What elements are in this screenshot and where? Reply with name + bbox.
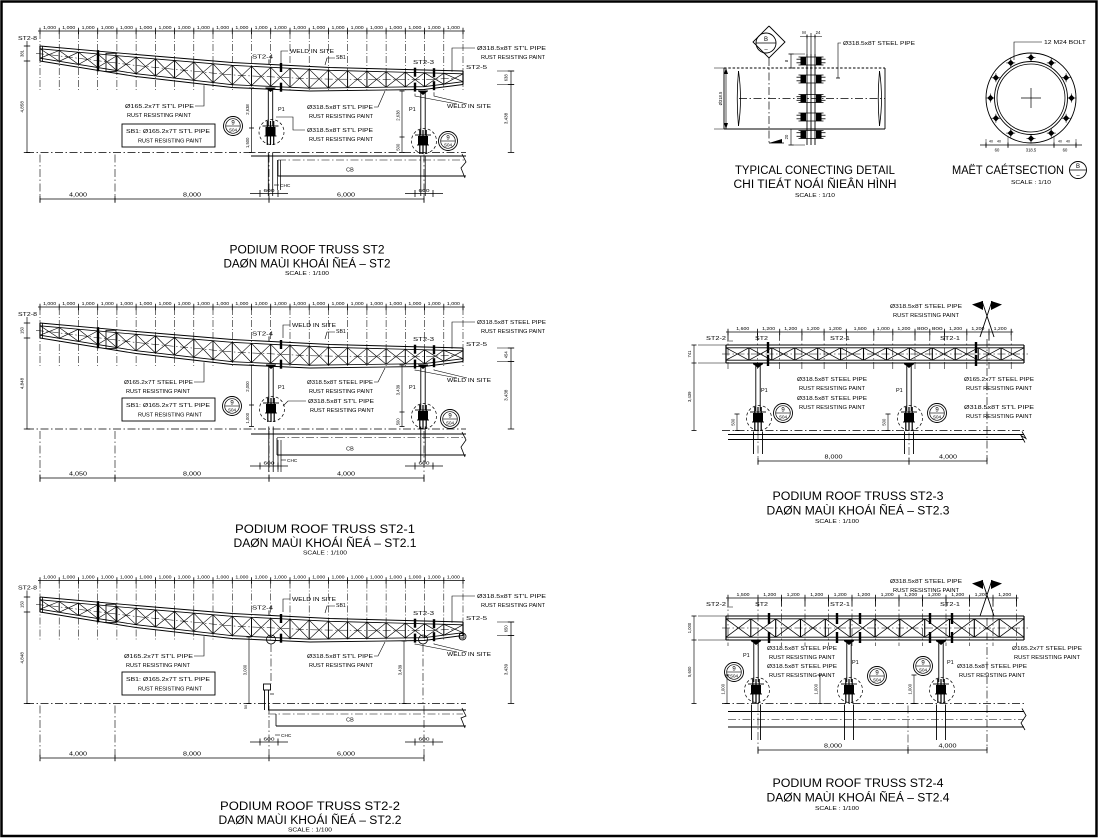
svg-text:B: B <box>1076 164 1080 170</box>
svg-text:SB1: Ø165.2x7T ST'L PIPE: SB1: Ø165.2x7T ST'L PIPE <box>126 129 211 135</box>
svg-text:3,438: 3,438 <box>504 112 509 124</box>
svg-text:800: 800 <box>917 326 929 331</box>
svg-text:20: 20 <box>784 134 789 139</box>
svg-text:1,200: 1,200 <box>994 326 1008 331</box>
svg-text:RUST RESISTING PAINT: RUST RESISTING PAINT <box>481 603 546 609</box>
svg-text:S04: S04 <box>919 668 928 673</box>
svg-text:ST2-4: ST2-4 <box>252 54 274 60</box>
svg-text:1,200: 1,200 <box>784 326 798 331</box>
svg-text:ST2-5: ST2-5 <box>466 342 487 348</box>
svg-text:3,439: 3,439 <box>687 391 692 402</box>
svg-text:1,000: 1,000 <box>43 301 57 306</box>
svg-text:DAØN MAÙI KHOÁI ÑEÁ – ST2.2: DAØN MAÙI KHOÁI ÑEÁ – ST2.2 <box>219 814 402 827</box>
svg-text:741: 741 <box>687 350 692 358</box>
svg-text:PODIUM ROOF TRUSS ST2-1: PODIUM ROOF TRUSS ST2-1 <box>235 524 415 536</box>
svg-text:1,000: 1,000 <box>178 25 192 30</box>
svg-text:1,200: 1,200 <box>998 592 1012 597</box>
svg-text:Ø318.5x8T ST'L PIPE: Ø318.5x8T ST'L PIPE <box>308 399 375 405</box>
svg-text:WELD IN SITE: WELD IN SITE <box>290 49 335 55</box>
svg-text:S04: S04 <box>933 415 942 420</box>
svg-text:1,200: 1,200 <box>807 326 821 331</box>
svg-text:Ø318.5x8T STEEL PIPE: Ø318.5x8T STEEL PIPE <box>767 646 838 652</box>
svg-text:4,050: 4,050 <box>69 472 87 478</box>
svg-text:4,000: 4,000 <box>939 455 957 461</box>
svg-text:1,000: 1,000 <box>312 25 326 30</box>
svg-text:150: 150 <box>20 600 25 608</box>
svg-text:1,000: 1,000 <box>139 574 153 579</box>
svg-text:CHC: CHC <box>280 183 291 189</box>
svg-text:1,000: 1,000 <box>82 25 96 30</box>
svg-text:WELD IN SITE: WELD IN SITE <box>292 597 337 603</box>
svg-text:ST2-5: ST2-5 <box>466 65 487 71</box>
svg-text:P1: P1 <box>278 385 285 391</box>
svg-text:500: 500 <box>731 418 736 426</box>
svg-text:4,000: 4,000 <box>337 472 355 478</box>
svg-text:40: 40 <box>1058 140 1062 144</box>
svg-text:4,000: 4,000 <box>939 744 957 750</box>
svg-text:1,000: 1,000 <box>120 574 134 579</box>
svg-text:WELD IN SITE: WELD IN SITE <box>447 652 492 658</box>
svg-text:1,000: 1,000 <box>428 25 442 30</box>
svg-text:1,200: 1,200 <box>975 592 989 597</box>
svg-text:24: 24 <box>816 30 821 35</box>
svg-text:RUST RESISTING PAINT: RUST RESISTING PAINT <box>138 687 203 693</box>
svg-text:638: 638 <box>504 74 509 82</box>
svg-text:50: 50 <box>244 705 248 709</box>
svg-text:1,000: 1,000 <box>235 574 249 579</box>
svg-text:1,200: 1,200 <box>951 592 965 597</box>
svg-text:4,000: 4,000 <box>69 752 87 758</box>
svg-text:S04: S04 <box>730 674 739 679</box>
svg-text:1,000: 1,000 <box>62 574 76 579</box>
svg-text:1,000: 1,000 <box>351 25 365 30</box>
svg-text:PODIUM ROOF TRUSS ST2-4: PODIUM ROOF TRUSS ST2-4 <box>773 778 945 790</box>
svg-text:RUST RESISTING PAINT: RUST RESISTING PAINT <box>799 386 866 392</box>
svg-text:CB: CB <box>346 718 354 724</box>
svg-text:1,000: 1,000 <box>447 301 461 306</box>
svg-text:500: 500 <box>396 143 401 151</box>
svg-text:SB1: Ø165.2x7T ST'L PIPE: SB1: Ø165.2x7T ST'L PIPE <box>126 403 211 409</box>
svg-text:S04: S04 <box>779 415 788 420</box>
svg-text:ST2-1: ST2-1 <box>940 602 960 608</box>
svg-text:600: 600 <box>264 461 276 466</box>
svg-text:ST2-2: ST2-2 <box>706 336 726 342</box>
svg-text:1,000: 1,000 <box>82 574 96 579</box>
svg-text:1,000: 1,000 <box>389 301 403 306</box>
svg-text:1,000: 1,000 <box>101 25 115 30</box>
svg-text:Ø165.2x7T ST'L PIPE: Ø165.2x7T ST'L PIPE <box>124 654 194 660</box>
svg-text:Ø318.5x8T STEEL PIPE: Ø318.5x8T STEEL PIPE <box>797 377 868 383</box>
svg-text:1,000: 1,000 <box>139 25 153 30</box>
svg-text:1,000: 1,000 <box>408 574 422 579</box>
svg-text:1,000: 1,000 <box>178 301 192 306</box>
svg-text:DAØN MAÙI KHOÁI ÑEÁ – ST2.1: DAØN MAÙI KHOÁI ÑEÁ – ST2.1 <box>234 537 417 550</box>
svg-text:P1: P1 <box>743 653 750 659</box>
svg-text:RUST RESISTING PAINT: RUST RESISTING PAINT <box>138 139 203 145</box>
svg-text:1,000: 1,000 <box>274 301 288 306</box>
svg-text:1,000: 1,000 <box>389 574 403 579</box>
svg-text:1,000: 1,000 <box>159 25 173 30</box>
svg-text:1,000: 1,000 <box>351 574 365 579</box>
svg-text:1,000: 1,000 <box>197 301 211 306</box>
svg-text:1,000: 1,000 <box>293 574 307 579</box>
svg-text:RUST RESISTING PAINT: RUST RESISTING PAINT <box>309 114 374 120</box>
svg-text:2,638: 2,638 <box>396 110 401 121</box>
svg-text:1,000: 1,000 <box>43 574 57 579</box>
svg-text:Ø318.5x8T ST'L PIPE: Ø318.5x8T ST'L PIPE <box>964 405 1035 411</box>
svg-text:1,000: 1,000 <box>197 574 211 579</box>
svg-text:1,000: 1,000 <box>235 301 249 306</box>
svg-text:ST2-4: ST2-4 <box>252 605 274 611</box>
svg-text:4,858: 4,858 <box>20 101 25 113</box>
svg-text:P1: P1 <box>409 107 416 113</box>
svg-text:1,000: 1,000 <box>159 301 173 306</box>
svg-text:60: 60 <box>995 148 1000 153</box>
svg-text:1,000: 1,000 <box>274 25 288 30</box>
svg-text:600: 600 <box>419 461 431 466</box>
svg-text:1,000: 1,000 <box>255 25 269 30</box>
svg-text:B: B <box>764 37 768 43</box>
svg-text:RUST RESISTING PAINT: RUST RESISTING PAINT <box>481 329 546 335</box>
svg-text:1,500: 1,500 <box>737 592 751 597</box>
svg-text:Ø318.5x8T ST'L PIPE: Ø318.5x8T ST'L PIPE <box>307 654 374 660</box>
svg-text:1,000: 1,000 <box>216 301 230 306</box>
svg-text:4,848: 4,848 <box>20 377 25 389</box>
svg-text:1,000: 1,000 <box>312 574 326 579</box>
svg-text:1,000: 1,000 <box>428 574 442 579</box>
svg-text:600: 600 <box>264 737 276 742</box>
svg-text:RUST RESISTING PAINT: RUST RESISTING PAINT <box>127 113 192 119</box>
svg-text:RUST RESISTING PAINT: RUST RESISTING PAINT <box>966 414 1033 420</box>
svg-text:ST2-1: ST2-1 <box>830 602 850 608</box>
svg-text:SCALE : 1/10: SCALE : 1/10 <box>1011 180 1051 186</box>
svg-text:Ø165.2x7T STEEL PIPE: Ø165.2x7T STEEL PIPE <box>1012 646 1083 652</box>
svg-text:1,000: 1,000 <box>370 574 384 579</box>
svg-text:1,200: 1,200 <box>904 592 918 597</box>
svg-text:1,600: 1,600 <box>736 326 750 331</box>
svg-text:8,000: 8,000 <box>183 472 201 478</box>
svg-text:1,200: 1,200 <box>928 592 942 597</box>
svg-text:1,500: 1,500 <box>245 137 250 148</box>
svg-text:1,000: 1,000 <box>428 301 442 306</box>
svg-text:1,000: 1,000 <box>101 301 115 306</box>
svg-text:SB1: SB1 <box>336 55 346 61</box>
svg-text:1,000: 1,000 <box>370 25 384 30</box>
svg-text:ST2-8: ST2-8 <box>18 312 37 318</box>
svg-text:S04: S04 <box>446 421 455 426</box>
svg-text:8,000: 8,000 <box>824 744 842 750</box>
svg-text:ST2-3: ST2-3 <box>413 611 434 617</box>
svg-text:40: 40 <box>997 140 1001 144</box>
svg-text:3,439: 3,439 <box>398 664 403 675</box>
svg-text:RUST RESISTING PAINT: RUST RESISTING PAINT <box>959 673 1026 679</box>
svg-text:P1: P1 <box>896 388 903 394</box>
svg-text:1,000: 1,000 <box>43 25 57 30</box>
svg-text:Ø318.5x8T ST'L PIPE: Ø318.5x8T ST'L PIPE <box>477 46 547 52</box>
svg-text:CHC: CHC <box>281 733 292 739</box>
svg-text:1,000: 1,000 <box>687 622 692 633</box>
svg-text:PODIUM ROOF TRUSS ST2: PODIUM ROOF TRUSS ST2 <box>230 245 385 257</box>
svg-text:SB1: Ø165.2x7T ST'L PIPE: SB1: Ø165.2x7T ST'L PIPE <box>126 677 211 683</box>
svg-text:1,000: 1,000 <box>255 301 269 306</box>
svg-text:1,000: 1,000 <box>62 301 76 306</box>
svg-text:1,000: 1,000 <box>216 25 230 30</box>
svg-text:RUST RESISTING PAINT: RUST RESISTING PAINT <box>309 389 374 395</box>
svg-text:1,000: 1,000 <box>877 326 891 331</box>
svg-text:1,200: 1,200 <box>829 326 843 331</box>
svg-text:3,439: 3,439 <box>396 384 401 395</box>
svg-text:ST2-8: ST2-8 <box>18 586 37 592</box>
svg-text:1,000: 1,000 <box>408 301 422 306</box>
svg-text:8,000: 8,000 <box>183 193 201 199</box>
svg-text:P1: P1 <box>761 388 768 394</box>
svg-text:1,200: 1,200 <box>762 326 776 331</box>
svg-text:1,500: 1,500 <box>854 326 868 331</box>
svg-text:1,000: 1,000 <box>370 301 384 306</box>
svg-text:381: 381 <box>20 49 25 57</box>
svg-text:1,000: 1,000 <box>351 301 365 306</box>
svg-text:1,200: 1,200 <box>949 326 963 331</box>
svg-text:Ø318.5x8T STEEL PIPE: Ø318.5x8T STEEL PIPE <box>890 304 963 310</box>
svg-text:1,200: 1,200 <box>787 592 801 597</box>
svg-text:S04: S04 <box>444 143 453 148</box>
svg-text:RUST RESISTING PAINT: RUST RESISTING PAINT <box>769 673 836 679</box>
svg-text:RUST RESISTING PAINT: RUST RESISTING PAINT <box>126 389 191 395</box>
svg-text:ST2-3: ST2-3 <box>413 337 434 343</box>
svg-text:P1: P1 <box>852 660 859 666</box>
svg-text:ST2-1: ST2-1 <box>940 336 960 342</box>
svg-text:Ø318.5x8T ST'L PIPE: Ø318.5x8T ST'L PIPE <box>477 594 547 600</box>
svg-text:SCALE : 1/100: SCALE : 1/100 <box>288 828 332 834</box>
svg-text:ST2-2: ST2-2 <box>706 602 726 608</box>
svg-text:1,000: 1,000 <box>139 301 153 306</box>
svg-text:1,000: 1,000 <box>908 683 913 694</box>
svg-text:1,000: 1,000 <box>447 574 461 579</box>
svg-text:Ø318.5x8T STEEL PIPE: Ø318.5x8T STEEL PIPE <box>477 320 547 326</box>
svg-text:S04: S04 <box>873 678 882 683</box>
svg-text:1,000: 1,000 <box>178 574 192 579</box>
svg-text:RUST RESISTING PAINT: RUST RESISTING PAINT <box>769 655 836 661</box>
svg-text:1,000: 1,000 <box>120 301 134 306</box>
svg-text:ST2-8: ST2-8 <box>18 36 37 42</box>
svg-text:CHC: CHC <box>287 458 298 464</box>
svg-text:1,000: 1,000 <box>332 574 346 579</box>
svg-text:ST2-1: ST2-1 <box>830 336 850 342</box>
svg-text:1,200: 1,200 <box>834 592 848 597</box>
svg-text:RUST RESISTING PAINT: RUST RESISTING PAINT <box>799 405 866 411</box>
svg-text:1,200: 1,200 <box>897 326 911 331</box>
svg-text:1,000: 1,000 <box>447 25 461 30</box>
svg-text:1,200: 1,200 <box>857 592 871 597</box>
svg-text:1,000: 1,000 <box>235 25 249 30</box>
svg-text:RUST RESISTING PAINT: RUST RESISTING PAINT <box>138 413 203 419</box>
svg-text:SCALE : 1/10: SCALE : 1/10 <box>795 193 835 199</box>
svg-text:SB1: SB1 <box>336 603 346 609</box>
svg-text:650: 650 <box>504 625 509 633</box>
svg-text:CB: CB <box>346 447 354 453</box>
svg-text:PODIUM ROOF TRUSS ST2-2: PODIUM ROOF TRUSS ST2-2 <box>220 801 400 813</box>
svg-text:S04: S04 <box>228 408 237 413</box>
svg-text:8,000: 8,000 <box>183 752 201 758</box>
svg-text:PODIUM ROOF TRUSS ST2-3: PODIUM ROOF TRUSS ST2-3 <box>773 491 944 503</box>
svg-text:RUST RESISTING PAINT: RUST RESISTING PAINT <box>1014 655 1081 661</box>
svg-text:MAËT CAÉTSECTION: MAËT CAÉTSECTION <box>952 164 1064 177</box>
svg-text:1,000: 1,000 <box>408 25 422 30</box>
svg-text:4,000: 4,000 <box>69 193 87 199</box>
svg-text:SCALE : 1/100: SCALE : 1/100 <box>815 519 859 525</box>
svg-text:WELD IN SITE: WELD IN SITE <box>292 323 337 329</box>
svg-text:Ø318.5x8T ST'L PIPE: Ø318.5x8T ST'L PIPE <box>307 128 374 134</box>
svg-text:1,000: 1,000 <box>62 25 76 30</box>
svg-text:1,000: 1,000 <box>101 574 115 579</box>
svg-text:2,000: 2,000 <box>245 381 250 392</box>
svg-text:6,000: 6,000 <box>337 752 355 758</box>
svg-text:ST2: ST2 <box>755 336 768 342</box>
svg-text:1,000: 1,000 <box>159 574 173 579</box>
svg-text:SCALE : 1/100: SCALE : 1/100 <box>303 551 347 557</box>
svg-text:TYPICAL CONECTING DETAIL: TYPICAL CONECTING DETAIL <box>735 165 896 177</box>
svg-text:P1: P1 <box>947 660 954 666</box>
svg-text:S04: S04 <box>229 128 238 133</box>
svg-text:500: 500 <box>882 418 887 426</box>
svg-text:RUST RESISTING PAINT: RUST RESISTING PAINT <box>310 408 375 414</box>
svg-text:1,000: 1,000 <box>255 574 269 579</box>
svg-text:RUST RESISTING PAINT: RUST RESISTING PAINT <box>309 663 374 669</box>
svg-text:DAØN MAÙI KHOÁI ÑEÁ – ST2.4: DAØN MAÙI KHOÁI ÑEÁ – ST2.4 <box>767 792 951 805</box>
svg-text:DAØN MAÙI KHOÁI ÑEÁ – ST2: DAØN MAÙI KHOÁI ÑEÁ – ST2 <box>224 258 391 271</box>
svg-text:600: 600 <box>264 188 276 193</box>
svg-text:CHI TIEÁT NOÁI ÑIEÂN HÌNH: CHI TIEÁT NOÁI ÑIEÂN HÌNH <box>734 178 897 191</box>
svg-text:454: 454 <box>504 351 509 359</box>
svg-text:RUST RESISTING PAINT: RUST RESISTING PAINT <box>126 663 191 669</box>
svg-text:SCALE : 1/100: SCALE : 1/100 <box>815 806 859 812</box>
svg-text:ST2: ST2 <box>755 602 768 608</box>
svg-text:RUST RESISTING PAINT: RUST RESISTING PAINT <box>893 588 960 594</box>
svg-text:1,000: 1,000 <box>197 25 211 30</box>
svg-text:12 M24 BOLT: 12 M24 BOLT <box>1044 40 1087 46</box>
svg-text:SCALE : 1/100: SCALE : 1/100 <box>285 271 329 277</box>
svg-text:4,848: 4,848 <box>20 652 25 664</box>
svg-text:1,000: 1,000 <box>332 25 346 30</box>
svg-text:RUST RESISTING PAINT: RUST RESISTING PAINT <box>481 55 546 61</box>
svg-text:Ø165.2x7T STEEL PIPE: Ø165.2x7T STEEL PIPE <box>964 377 1035 383</box>
svg-text:1,000: 1,000 <box>389 25 403 30</box>
svg-text:1,200: 1,200 <box>810 592 824 597</box>
svg-text:WELD IN SITE: WELD IN SITE <box>447 104 492 110</box>
svg-text:1,200: 1,200 <box>763 592 777 597</box>
svg-text:40: 40 <box>989 140 993 144</box>
svg-text:1,000: 1,000 <box>332 301 346 306</box>
svg-text:8,000: 8,000 <box>825 455 843 461</box>
svg-text:3,439: 3,439 <box>504 663 509 675</box>
svg-text:Ø318.5x8T ST'L PIPE: Ø318.5x8T ST'L PIPE <box>307 105 374 111</box>
svg-text:1,000: 1,000 <box>721 683 726 694</box>
svg-text:Ø318.5x8T STEEL PIPE: Ø318.5x8T STEEL PIPE <box>797 396 868 402</box>
svg-text:1,000: 1,000 <box>120 25 134 30</box>
svg-text:5,600: 5,600 <box>687 666 692 677</box>
svg-text:Ø165.2x7T STEEL PIPE: Ø165.2x7T STEEL PIPE <box>124 380 194 386</box>
svg-text:P1: P1 <box>409 385 416 391</box>
svg-text:Ø165.2x7T ST'L PIPE: Ø165.2x7T ST'L PIPE <box>125 104 195 110</box>
svg-text:1,000: 1,000 <box>814 683 819 694</box>
svg-text:1,200: 1,200 <box>971 326 985 331</box>
svg-text:P1: P1 <box>278 107 285 113</box>
svg-text:150: 150 <box>20 326 25 334</box>
svg-text:Ø318.5x8T STEEL PIPE: Ø318.5x8T STEEL PIPE <box>767 664 838 670</box>
svg-text:1,000: 1,000 <box>245 412 250 423</box>
svg-text:1,000: 1,000 <box>293 301 307 306</box>
svg-text:600: 600 <box>419 737 431 742</box>
svg-text:RUST RESISTING PAINT: RUST RESISTING PAINT <box>309 137 374 143</box>
svg-text:ST2-5: ST2-5 <box>466 616 487 622</box>
svg-text:ST2-3: ST2-3 <box>413 60 434 66</box>
svg-text:M: M <box>802 30 806 35</box>
svg-text:60: 60 <box>1063 148 1068 153</box>
svg-text:Ø318.5x8T STEEL PIPE: Ø318.5x8T STEEL PIPE <box>957 664 1028 670</box>
svg-text:6,000: 6,000 <box>337 193 355 199</box>
svg-text:CB: CB <box>346 168 354 174</box>
svg-text:600: 600 <box>419 188 431 193</box>
svg-text:800: 800 <box>932 326 944 331</box>
svg-text:1,000: 1,000 <box>82 301 96 306</box>
svg-text:RUST RESISTING PAINT: RUST RESISTING PAINT <box>966 386 1033 392</box>
svg-text:RUST RESISTING PAINT: RUST RESISTING PAINT <box>893 313 960 319</box>
svg-text:Ø318.5: Ø318.5 <box>718 91 723 105</box>
svg-text:Ø318.5x8T STEEL PIPE: Ø318.5x8T STEEL PIPE <box>843 41 916 47</box>
svg-text:WELD IN SITE: WELD IN SITE <box>447 378 492 384</box>
svg-text:Ø318.5x8T STEEL PIPE: Ø318.5x8T STEEL PIPE <box>890 579 963 585</box>
svg-text:1,000: 1,000 <box>312 301 326 306</box>
svg-text:1,200: 1,200 <box>881 592 895 597</box>
svg-text:ST2-4: ST2-4 <box>252 331 274 337</box>
svg-text:318.5: 318.5 <box>1026 148 1037 153</box>
svg-text:500: 500 <box>396 418 401 426</box>
svg-text:3,000: 3,000 <box>243 664 248 675</box>
svg-text:40: 40 <box>1066 140 1070 144</box>
svg-text:1,000: 1,000 <box>293 25 307 30</box>
svg-text:1,000: 1,000 <box>274 574 288 579</box>
svg-text:3,438: 3,438 <box>504 389 509 401</box>
svg-text:1,000: 1,000 <box>216 574 230 579</box>
svg-text:SB1: SB1 <box>336 329 346 335</box>
svg-text:DAØN MAÙI KHOÁI ÑEÁ – ST2.3: DAØN MAÙI KHOÁI ÑEÁ – ST2.3 <box>767 505 950 518</box>
svg-text:Ø318.5x8T STEEL PIPE: Ø318.5x8T STEEL PIPE <box>307 380 374 386</box>
svg-text:2,638: 2,638 <box>245 104 250 115</box>
